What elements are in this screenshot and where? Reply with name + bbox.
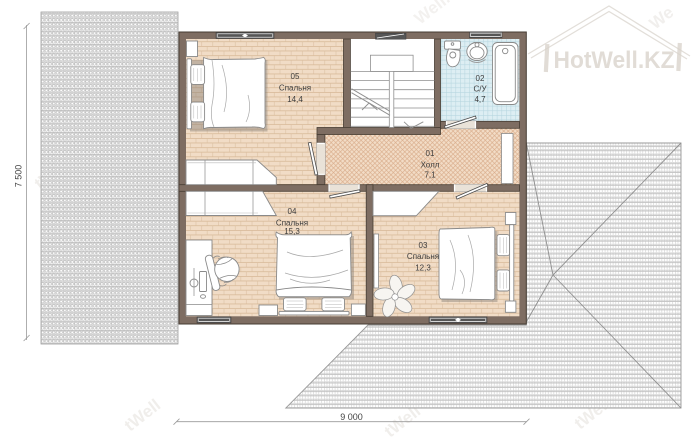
svg-text:03: 03 bbox=[419, 241, 428, 250]
svg-text:Спальня: Спальня bbox=[279, 84, 311, 93]
svg-text:7,1: 7,1 bbox=[424, 171, 436, 180]
svg-text:7 500: 7 500 bbox=[14, 165, 24, 188]
svg-text:С/У: С/У bbox=[473, 85, 487, 94]
svg-text:Спальня: Спальня bbox=[407, 252, 439, 261]
svg-text:15,3: 15,3 bbox=[284, 227, 300, 236]
svg-text:4,7: 4,7 bbox=[474, 95, 486, 104]
svg-text:Холл: Холл bbox=[421, 161, 440, 170]
svg-text:01: 01 bbox=[426, 149, 435, 158]
svg-text:9 000: 9 000 bbox=[340, 412, 363, 422]
svg-text:02: 02 bbox=[476, 74, 485, 83]
svg-text:04: 04 bbox=[288, 207, 297, 216]
svg-text:12,3: 12,3 bbox=[415, 264, 431, 273]
svg-text:14,4: 14,4 bbox=[287, 95, 303, 104]
svg-text:05: 05 bbox=[291, 72, 300, 81]
svg-text:HotWell.KZ: HotWell.KZ bbox=[554, 47, 675, 74]
